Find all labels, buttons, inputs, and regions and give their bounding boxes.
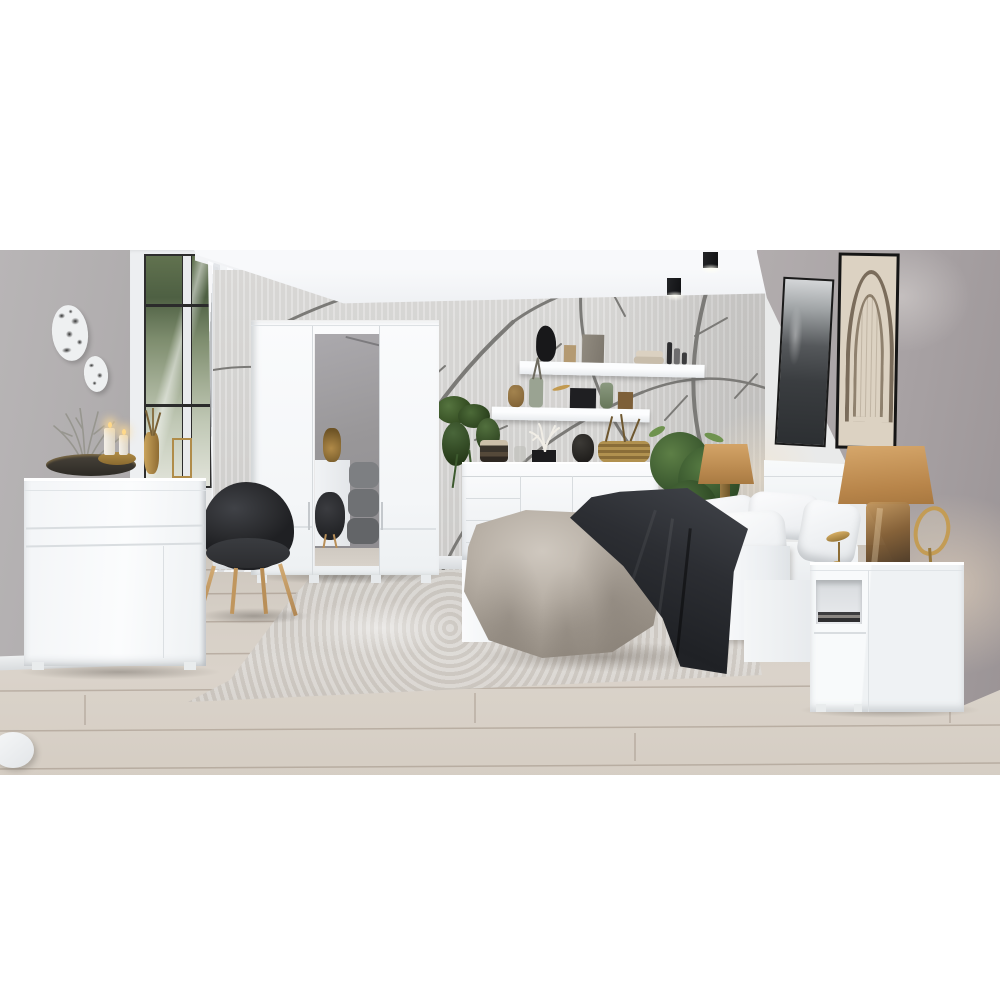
dresser-decor bbox=[40, 408, 200, 482]
wardrobe-top-edge bbox=[251, 325, 439, 326]
wardrobe-leg bbox=[421, 575, 431, 583]
mirror-reflected-ceiling-line bbox=[346, 336, 379, 350]
dresser-drawer-groove-2 bbox=[26, 542, 204, 547]
mirror-reflected-ottoman bbox=[347, 518, 379, 544]
screenshot-canvas bbox=[0, 0, 1000, 1000]
grey-box bbox=[582, 334, 605, 362]
wardrobe-groove-right-door bbox=[380, 528, 436, 530]
bottle-1 bbox=[667, 342, 672, 364]
dresser-top-edge bbox=[24, 490, 206, 491]
sideboard-decor bbox=[462, 422, 658, 464]
bed-side-lower bbox=[744, 580, 814, 662]
mirror-reflected-ottoman bbox=[348, 489, 379, 517]
pillar-candle-1 bbox=[104, 428, 115, 455]
dresser-leg bbox=[32, 662, 44, 670]
pillar-candle-2 bbox=[119, 435, 128, 455]
stacked-candles bbox=[480, 440, 508, 462]
wicker-basket bbox=[598, 441, 650, 463]
lamp-base-highlight bbox=[871, 508, 883, 566]
dresser-leg bbox=[184, 662, 196, 670]
magazines bbox=[818, 618, 860, 622]
wardrobe-handle-left bbox=[308, 502, 310, 530]
chair-leg bbox=[230, 568, 238, 614]
bedroom-photo bbox=[0, 250, 1000, 775]
tan-box bbox=[564, 345, 576, 362]
bottle-3 bbox=[682, 352, 687, 364]
spotlight-1-glow bbox=[700, 264, 722, 274]
nightstand-leg bbox=[816, 704, 826, 712]
framed-picture-arch-sketch bbox=[835, 252, 899, 449]
bust-sculpture bbox=[536, 325, 557, 361]
window-muntin-row2 bbox=[146, 404, 210, 407]
mirror-reflected-floor bbox=[315, 548, 379, 566]
headboard-groove bbox=[764, 476, 850, 477]
black-box bbox=[570, 388, 596, 408]
bedside-lamp-right-shade bbox=[838, 446, 934, 504]
dresser-door-seam bbox=[163, 546, 164, 658]
nightstand bbox=[810, 562, 964, 712]
picture-highlight bbox=[787, 305, 804, 366]
candle-flame bbox=[122, 429, 126, 435]
black-stone-vase bbox=[572, 434, 594, 463]
nightstand-open-shelf bbox=[816, 580, 862, 624]
framed-picture-landscape bbox=[775, 277, 835, 447]
throw-fold bbox=[675, 528, 692, 658]
nightstand-leg bbox=[854, 704, 862, 712]
wardrobe-handle-right bbox=[381, 502, 383, 530]
nightstand-drawer-groove bbox=[814, 632, 866, 634]
chair-leg bbox=[278, 563, 298, 616]
small-brown-box bbox=[618, 392, 633, 409]
wardrobe-door-seam-left bbox=[312, 326, 313, 575]
gold-vase bbox=[144, 432, 159, 474]
folded-towels-2 bbox=[634, 356, 664, 364]
sideboard-drawer-line bbox=[466, 498, 520, 499]
spotlight-2-glow bbox=[664, 291, 686, 301]
wardrobe-mirror bbox=[314, 334, 379, 566]
mirror-reflected-ottoman bbox=[349, 462, 379, 488]
wardrobe-leg bbox=[371, 575, 381, 583]
nightstand-top-edge bbox=[810, 570, 964, 571]
vanity-mirror-ring bbox=[909, 503, 955, 559]
sideboard-top-groove bbox=[462, 476, 658, 477]
dresser-drawer-groove-1 bbox=[26, 524, 204, 529]
chair-leg bbox=[260, 568, 268, 614]
window-muntin-row1 bbox=[146, 304, 210, 307]
green-glass-vase bbox=[600, 383, 613, 409]
basket-twig bbox=[630, 418, 641, 441]
glass-jar bbox=[514, 446, 526, 462]
gold-leaf-ornament bbox=[552, 384, 570, 392]
wardrobe-leg bbox=[309, 575, 319, 583]
mirror-reflected-gold-plant bbox=[323, 428, 341, 462]
dried-stem bbox=[153, 412, 162, 436]
gold-wire-stand bbox=[172, 438, 192, 478]
white-coral bbox=[526, 422, 564, 452]
bedside-lamp-left-shade bbox=[698, 444, 754, 484]
plant-leaf bbox=[703, 431, 724, 444]
mirror-reflected-chair bbox=[315, 492, 345, 540]
dresser bbox=[24, 478, 206, 666]
nightstand-front-side-seam bbox=[868, 570, 869, 712]
candle-flame bbox=[108, 422, 112, 428]
tub-chair bbox=[202, 482, 297, 622]
twig-vase bbox=[529, 377, 544, 407]
bottle-2 bbox=[674, 348, 680, 364]
wardrobe-door-seam-right bbox=[379, 326, 380, 575]
